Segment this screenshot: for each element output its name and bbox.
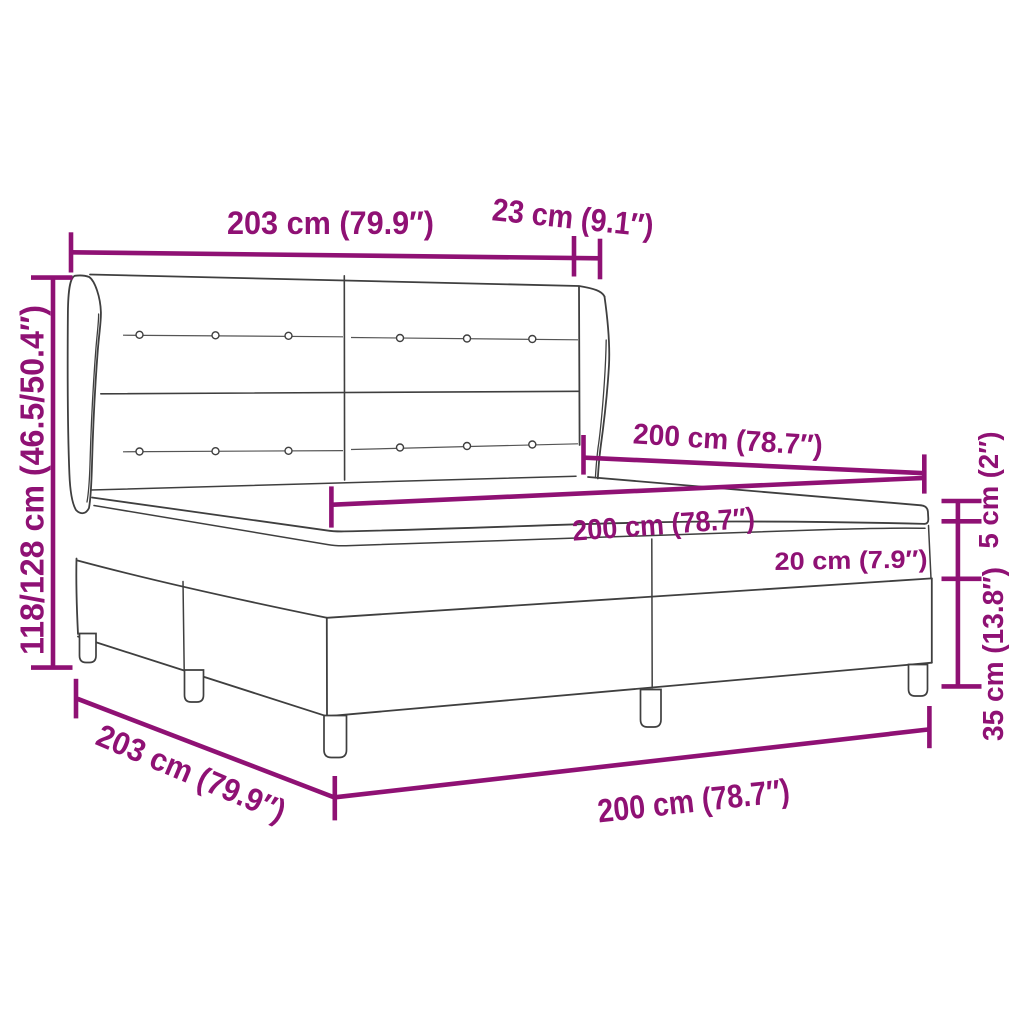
svg-text:20 cm (7.9″): 20 cm (7.9″) (774, 545, 927, 576)
svg-text:118/128 cm (46.5/50.4″): 118/128 cm (46.5/50.4″) (14, 305, 51, 655)
svg-text:35 cm (13.8″): 35 cm (13.8″) (978, 567, 1010, 741)
svg-text:203 cm (79.9″): 203 cm (79.9″) (227, 205, 434, 241)
svg-text:5 cm (2″): 5 cm (2″) (973, 432, 1004, 549)
